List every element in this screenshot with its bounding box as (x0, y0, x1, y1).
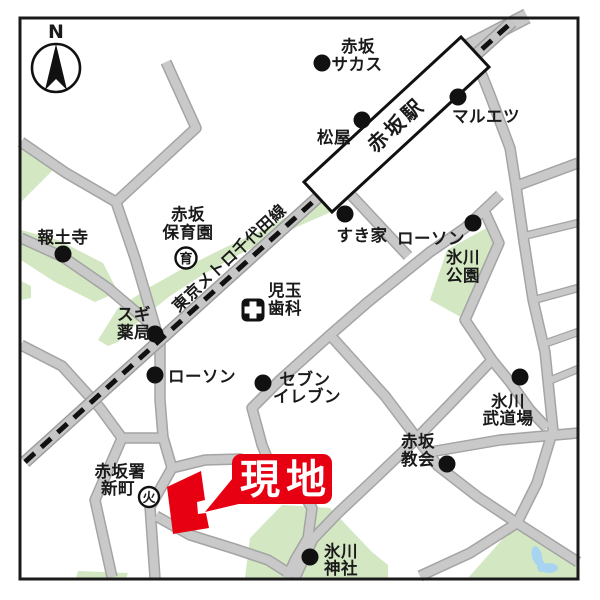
label-seven-2: イレブン (273, 386, 341, 406)
area-map: 赤坂駅 東京メトロ千代田線 赤坂 サカス 松屋 マルエツ すき家 ローソン 報土… (0, 0, 600, 600)
poi-dot-matsuya (354, 112, 371, 129)
poi-dot-jinja (302, 549, 319, 566)
label-lawson-upper: ローソン (397, 229, 465, 248)
poi-dot-sukiya (337, 206, 354, 223)
label-kyokai-2: 教会 (400, 449, 435, 469)
poi-dot-lawson-lower (147, 367, 164, 384)
label-seven-1: セブン (280, 369, 331, 389)
label-kodama-1: 児玉 (267, 281, 302, 300)
poi-dot-hodoji (55, 246, 72, 263)
label-hodoji: 報土寺 (38, 227, 89, 247)
label-kodama-2: 歯科 (268, 298, 302, 318)
poi-dot-kyokai (439, 456, 456, 473)
label-budojo-2: 武道場 (483, 408, 534, 428)
label-kyokai-1: 赤坂 (401, 431, 435, 451)
label-park-2: 公園 (446, 266, 480, 285)
map-canvas: 赤坂駅 東京メトロ千代田線 赤坂 サカス 松屋 マルエツ すき家 ローソン 報土… (0, 0, 600, 600)
label-jinja-2: 神社 (324, 558, 358, 578)
poi-dot-sacas (314, 55, 331, 72)
label-shinmachi-2: 新町 (101, 478, 135, 498)
label-jinja-1: 氷川 (324, 541, 358, 561)
label-sukiya: すき家 (337, 225, 388, 245)
label-sugi-1: スギ (117, 305, 151, 324)
nursery-icon-glyph: 育 (179, 251, 192, 267)
label-budojo-1: 氷川 (491, 391, 525, 411)
label-lawson-lower: ローソン (168, 367, 236, 386)
label-matsuya: 松屋 (317, 127, 351, 147)
poi-dot-seven (255, 375, 272, 392)
poi-dot-maruetsu (450, 89, 467, 106)
poi-dot-budojo (512, 369, 529, 386)
callout-label: 現地 (240, 457, 332, 503)
label-maruetsu: マルエツ (452, 107, 520, 126)
poi-dot-lawson-upper (465, 215, 482, 232)
compass-n-label: N (48, 21, 64, 43)
label-hoikuen-2: 保育園 (162, 222, 214, 242)
label-sugi-2: 薬局 (117, 323, 151, 342)
fire-station-icon-glyph: 火 (142, 491, 156, 506)
dental-clinic-icon (242, 299, 265, 322)
label-park-1: 氷川 (446, 247, 480, 267)
label-sacas-1: 赤坂 (341, 36, 375, 56)
label-hoikuen-1: 赤坂 (171, 204, 205, 224)
label-sacas-2: サカス (332, 55, 383, 74)
label-shinmachi-1: 赤坂署 (95, 461, 146, 481)
